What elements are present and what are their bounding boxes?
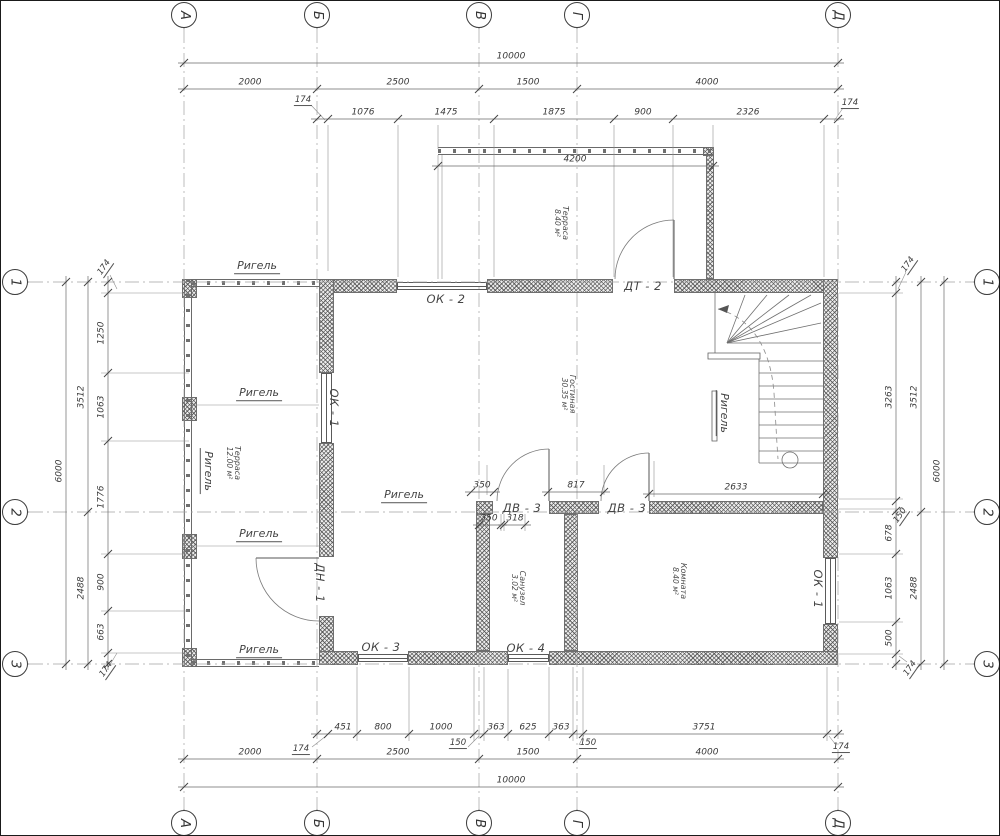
room-name: Комната [679,563,687,599]
axis-letter: Д [831,10,846,20]
axis-bubble-В-top: В [466,2,492,28]
beam-label: Ригель [381,489,427,503]
axis-letter: Г [570,11,585,18]
dim-label-left-axes: 3512 [77,386,86,409]
dim-label-top-inner: 1076 [352,108,375,117]
room-area: 3.02 м² [510,571,518,606]
dim-label-terrace-width: 4200 [564,155,587,164]
dim-label-right-total: 6000 [933,460,942,483]
opening-label-ОК-2: ОК - 2 [427,293,466,305]
opening-label-ДН-1: ДН - 1 [314,563,326,602]
dim-label-left-inner: 1776 [97,486,106,509]
axis-bubble-А-bottom: А [171,810,197,836]
dim-label-right-axes: 3512 [910,386,919,409]
axis-bubble-Д-bottom: Д [825,810,851,836]
dim-label-bottom-inner: 363 [487,723,504,732]
dim-label-bottom-axes: 2500 [387,748,410,757]
axis-bubble-3-right: 3 [974,651,1000,677]
dim-label-wc-dim-2: 318 [506,514,523,523]
dim-label-right-inner: 500 [885,629,894,646]
axis-number: 3 [980,660,995,668]
opening-label-ОК-3: ОК - 3 [362,641,401,653]
dim-label-bottom-inner: 363 [552,723,569,732]
axis-letter: В [471,819,486,828]
room-label: Терраса12.00 м² [225,446,241,480]
room-label: Санузел3.02 м² [510,571,526,606]
beam-label: Ригель [234,260,280,274]
axis-number: 2 [980,508,995,516]
opening-label-ДВ-3: ДВ - 3 [608,502,647,514]
room-name: Гостиная [568,375,576,414]
dim-label-bottom-axes: 2000 [239,748,262,757]
dim-label-bottom-total: 10000 [497,776,526,785]
beam-label: Ригель [200,448,214,494]
dim-label-right-axes: 2488 [910,577,919,600]
axis-letter: В [471,11,486,20]
room-name: Санузел [518,571,526,606]
opening-label-ОК-1: ОК - 1 [812,570,824,609]
small-dim-label: 174 [900,255,919,276]
small-dim-label: 174 [832,743,850,753]
dim-label-wc-dim-1: 350 [480,514,497,523]
dim-label-top-axes: 2000 [239,78,262,87]
labels-layer: 1000020002500150040001076147518759002326… [1,1,1000,836]
dim-label-bottom-axes: 4000 [696,748,719,757]
axis-bubble-Б-bottom: Б [304,810,330,836]
dim-label-bottom-inner: 800 [374,723,391,732]
dim-label-bottom-inner: 3751 [693,723,716,732]
axis-letter: Б [309,11,324,20]
opening-label-ОК-1: ОК - 1 [328,389,340,428]
axis-bubble-Г-top: Г [564,2,590,28]
axis-bubble-1-right: 1 [974,269,1000,295]
opening-label-ОК-4: ОК - 4 [507,642,546,654]
small-dim-label: 150 [449,739,467,749]
dim-label-bottom-inner: 1000 [430,723,453,732]
axis-letter: Д [831,818,846,828]
room-area: 30.35 м² [560,375,568,414]
dim-label-left-inner: 663 [97,623,106,640]
room-label: Комната8.40 м² [671,563,687,599]
dim-label-top-inner: 1875 [543,108,566,117]
small-dim-label: 174 [96,258,115,279]
dim-label-left-total: 6000 [55,460,64,483]
dim-label-top-inner: 2326 [737,108,760,117]
axis-bubble-Г-bottom: Г [564,810,590,836]
small-dim-label: 174 [98,660,117,681]
dim-label-left-inner: 1250 [97,322,106,345]
beam-label: Ригель [236,644,282,658]
dim-label-left-axes: 2488 [77,577,86,600]
axis-letter: Г [570,819,585,826]
beam-label: Ригель [236,387,282,401]
beam-label: Ригель [716,390,730,436]
dim-label-door-dim-2: 817 [567,481,584,490]
axis-bubble-1-left: 1 [2,269,28,295]
opening-label-ДТ-2: ДТ - 2 [624,280,662,292]
dim-label-bottom-axes: 1500 [517,748,540,757]
dim-label-top-inner: 900 [634,108,651,117]
floor-plan-sheet: 1000020002500150040001076147518759002326… [0,0,1000,836]
room-area: 12.00 м² [225,446,233,480]
axis-letter: А [177,819,192,828]
small-dim-label: 174 [841,99,859,109]
dim-label-right-inner: 3263 [885,386,894,409]
opening-label-ДВ-3: ДВ - 3 [503,502,542,514]
axis-bubble-Д-top: Д [825,2,851,28]
small-dim-label: 150 [579,739,597,749]
axis-bubble-Б-top: Б [304,2,330,28]
axis-number: 1 [980,278,995,286]
dim-label-bottom-inner: 451 [334,723,351,732]
dim-label-top-axes: 4000 [696,78,719,87]
small-dim-label: 174 [294,96,312,106]
dim-label-left-inner: 900 [97,573,106,590]
room-area: 8.40 м² [671,563,679,599]
axis-bubble-В-bottom: В [466,810,492,836]
dim-label-door-dim-1: 350 [473,481,490,490]
axis-number: 1 [8,278,23,286]
axis-bubble-2-right: 2 [974,499,1000,525]
dim-label-top-inner: 1475 [435,108,458,117]
room-name: Терраса [233,446,241,480]
axis-letter: Б [309,819,324,828]
room-area: 8.40 м² [553,206,561,240]
room-name: Терраса [561,206,569,240]
axis-bubble-2-left: 2 [2,499,28,525]
room-label: Терраса8.40 м² [553,206,569,240]
dim-label-top-total: 10000 [497,52,526,61]
axis-letter: А [177,11,192,20]
dim-label-top-axes: 1500 [517,78,540,87]
axis-bubble-А-top: А [171,2,197,28]
dim-label-left-inner: 1063 [97,396,106,419]
small-dim-label: 174 [902,659,921,680]
dim-label-right-inner: 678 [885,524,894,541]
small-dim-label: 150 [892,506,911,527]
axis-bubble-3-left: 3 [2,651,28,677]
small-dim-label: 174 [292,745,310,755]
dim-label-right-inner: 1063 [885,577,894,600]
axis-number: 3 [8,660,23,668]
axis-number: 2 [8,508,23,516]
dim-label-bottom-inner: 625 [519,723,536,732]
dim-label-top-axes: 2500 [387,78,410,87]
room-label: Гостиная30.35 м² [560,375,576,414]
beam-label: Ригель [236,528,282,542]
dim-label-stair-width: 2633 [725,483,748,492]
